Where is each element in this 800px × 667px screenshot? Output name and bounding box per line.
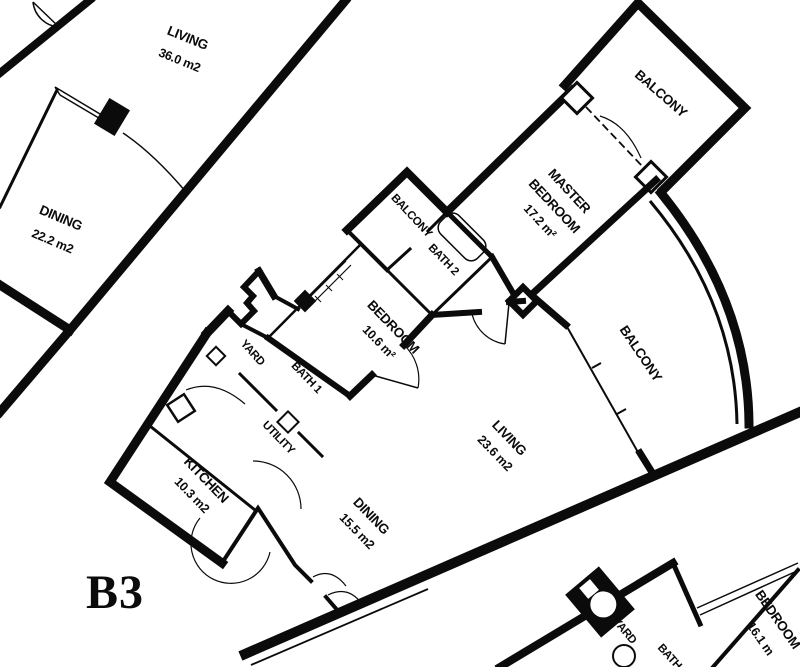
sliding-door [586, 107, 643, 167]
door-leaf [505, 303, 509, 344]
wall [536, 299, 566, 325]
wall-yard-step [228, 271, 259, 324]
wall-notch [207, 347, 225, 365]
wall [0, 285, 70, 330]
wall-face-line [251, 589, 428, 665]
room-label-bath2: BATH 2 [426, 242, 461, 278]
door-arc [186, 386, 245, 404]
wall-entry [222, 508, 311, 581]
room-label-balcony-small: BALCONY [388, 192, 434, 240]
fixture-circle [613, 645, 635, 667]
room-label-dining-neighbor: DINING [37, 202, 84, 233]
room-area-bedroom-br: 16.1 m [744, 619, 777, 658]
door-panel [277, 411, 298, 432]
door-arc [313, 574, 362, 604]
wall-window-band [268, 243, 362, 338]
wall [640, 453, 650, 469]
floorplan-page: LIVING 36.0 m2 DINING 22.2 m2 [0, 0, 800, 667]
wall [492, 257, 513, 293]
room-label-bath-br: BATH [655, 642, 684, 667]
wall [347, 230, 387, 270]
wall-column [94, 98, 130, 136]
wall-bath2 [387, 257, 492, 315]
door-leaf [372, 375, 418, 388]
room-area-living-neighbor: 36.0 m2 [157, 46, 203, 76]
door-arc [472, 314, 505, 344]
room-label-balcony-top: BALCONY [632, 67, 690, 121]
door-arc [253, 461, 301, 509]
neighbor-unit-top-left: LIVING 36.0 m2 DINING 22.2 m2 [0, 0, 345, 412]
room-area-dining-neighbor: 22.2 m2 [30, 226, 76, 256]
wall [274, 296, 298, 309]
sliding-door-jog [592, 363, 626, 414]
wall-partition [0, 90, 57, 207]
unit-b3: BALCONY BATH 2 BEDROOM 10.6 m² YARD BATH… [86, 3, 800, 665]
room-label-yard-br: YARD [610, 616, 638, 647]
door-arc [123, 133, 186, 192]
door-arc [600, 116, 641, 158]
neighbor-unit-bottom-right: YARD BATH BEDROOM 16.1 m [500, 563, 800, 667]
unit-number-label: B3 [86, 566, 144, 619]
wall [259, 271, 274, 296]
room-label-yard: YARD [238, 338, 267, 368]
room-label-balcony-right: BALCONY [617, 323, 665, 385]
window-opening [167, 394, 195, 422]
wall [673, 563, 700, 624]
room-label-living-neighbor: LIVING [165, 23, 210, 53]
wall-stub [207, 311, 228, 333]
wall [0, 0, 90, 73]
wall-exterior-kitchen [110, 333, 222, 563]
floorplan-drawing: LIVING 36.0 m2 DINING 22.2 m2 [0, 0, 800, 667]
wall [241, 324, 268, 338]
